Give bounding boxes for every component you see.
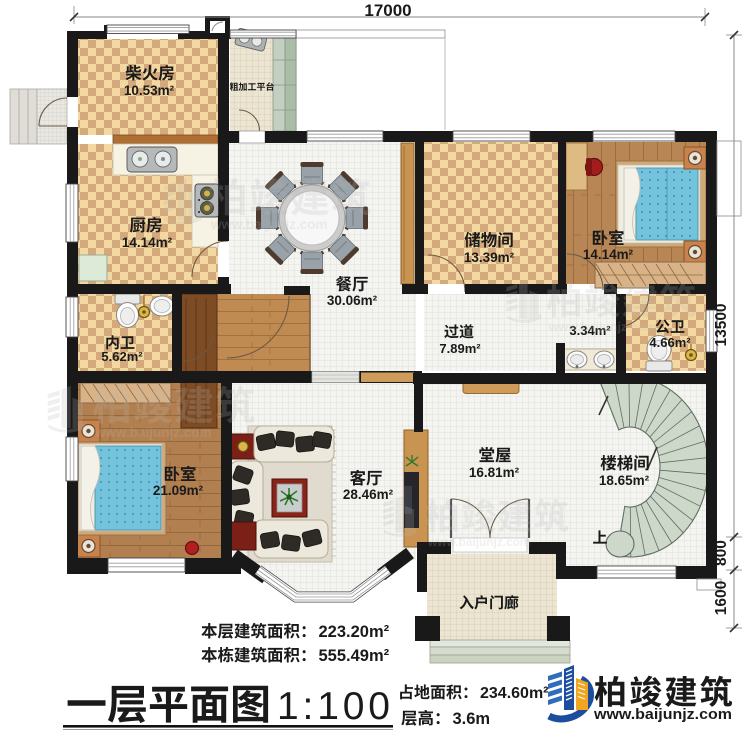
svg-text:30.06m²: 30.06m² [327, 293, 378, 308]
svg-text:234.60m²: 234.60m² [480, 685, 549, 702]
svg-text:14.14m²: 14.14m² [583, 247, 634, 262]
svg-text:14.14m²: 14.14m² [122, 235, 173, 250]
svg-text:555.49m²: 555.49m² [319, 647, 390, 665]
svg-text:1600: 1600 [713, 581, 730, 615]
svg-text:www.baijunjz.com: www.baijunjz.com [548, 320, 656, 334]
svg-text:3.6m: 3.6m [453, 710, 491, 728]
svg-text:www.baijunjz.com: www.baijunjz.com [94, 425, 212, 440]
svg-text:13500: 13500 [713, 303, 730, 346]
svg-text:5.62m²: 5.62m² [101, 349, 143, 364]
svg-text:4.66m²: 4.66m² [649, 335, 691, 350]
svg-text:1:100: 1:100 [277, 685, 390, 728]
svg-text:16.81m²: 16.81m² [469, 465, 520, 480]
svg-text:www.baijunjz.com: www.baijunjz.com [427, 535, 531, 549]
svg-text:www.baijunjz.com: www.baijunjz.com [210, 217, 328, 232]
svg-text:7.89m²: 7.89m² [439, 341, 481, 356]
svg-text:17000: 17000 [364, 1, 411, 20]
svg-text:13.39m²: 13.39m² [464, 250, 515, 265]
svg-text:10.53m²: 10.53m² [124, 83, 175, 98]
svg-text:www.baijunjz.com: www.baijunjz.com [593, 707, 732, 723]
svg-text:18.65m²: 18.65m² [599, 473, 650, 488]
svg-text:21.09m²: 21.09m² [153, 483, 204, 498]
svg-text:28.46m²: 28.46m² [343, 487, 394, 502]
svg-text:223.20m²: 223.20m² [319, 623, 390, 641]
svg-text:800: 800 [713, 540, 730, 566]
